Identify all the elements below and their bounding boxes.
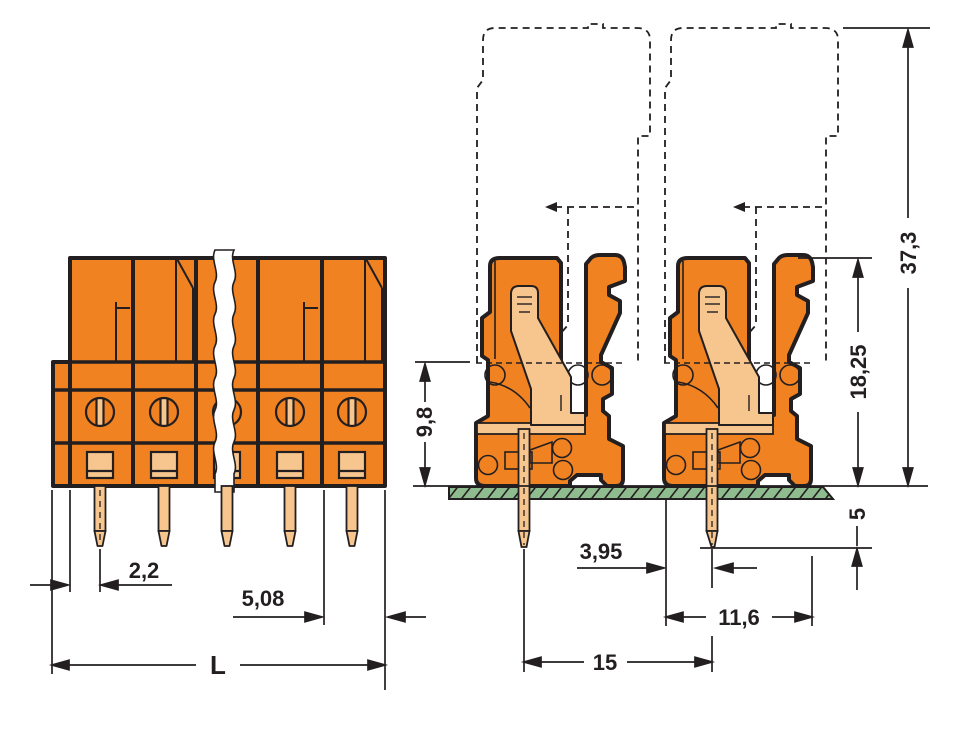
dim-label-total-height: 37,3 [896, 232, 921, 275]
terminal-block-drawing: 2,2 5,08 L 9,8 18,25 37,3 5 3,95 11,6 15 [0, 0, 957, 746]
dim-label-pin-offset: 3,95 [580, 539, 623, 564]
dim-label-depth: 11,6 [718, 605, 760, 630]
break-line [214, 250, 236, 492]
front-view-pins [95, 486, 358, 546]
dim-label-row-spacing: 15 [593, 650, 617, 675]
dim-label-pin-to-edge: 2,2 [129, 558, 160, 583]
side-view-connector-1 [476, 24, 650, 486]
side-view-connector-2 [664, 24, 838, 486]
technical-drawing-page: 2,2 5,08 L 9,8 18,25 37,3 5 3,95 11,6 15 [0, 0, 957, 746]
dim-label-height-above-pcb: 18,25 [846, 344, 871, 399]
dim-label-length: L [210, 650, 226, 680]
dim-label-pin-below-pcb: 5 [845, 508, 870, 520]
dim-label-front-height: 9,8 [412, 407, 437, 438]
front-view [53, 250, 385, 546]
dim-label-pitch: 5,08 [242, 586, 285, 611]
